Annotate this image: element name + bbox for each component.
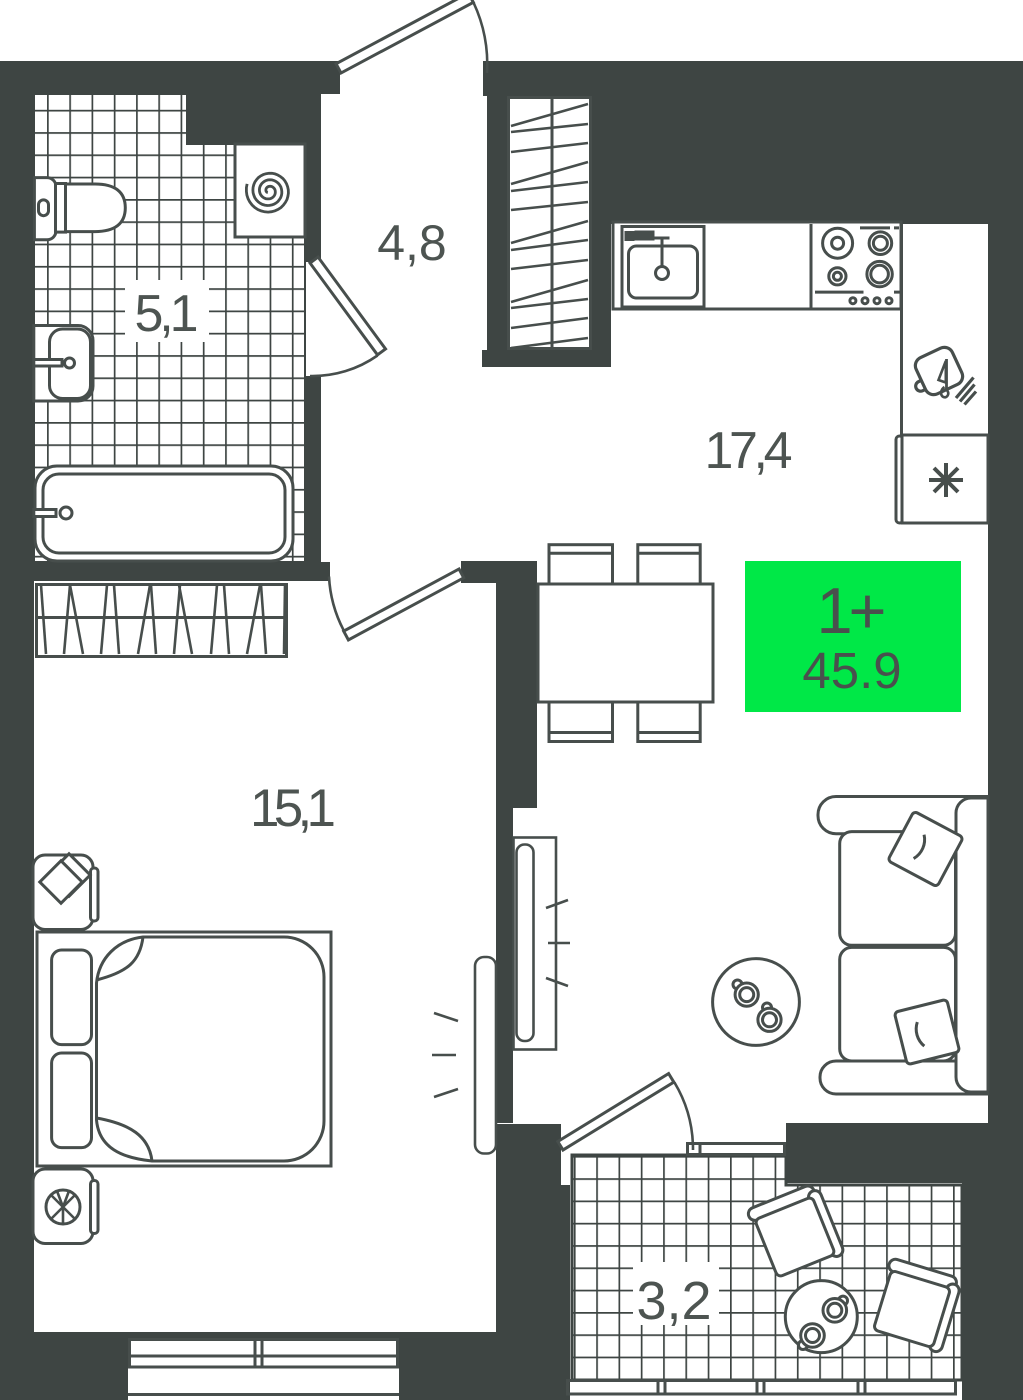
svg-text:15,1: 15,1 [250,779,336,838]
svg-text:5,1: 5,1 [135,285,199,343]
svg-text:1+: 1+ [817,574,887,647]
svg-text:4,8: 4,8 [377,215,447,271]
svg-text:17,4: 17,4 [705,422,793,480]
svg-text:45.9: 45.9 [802,642,901,699]
svg-text:3,2: 3,2 [636,1271,711,1331]
